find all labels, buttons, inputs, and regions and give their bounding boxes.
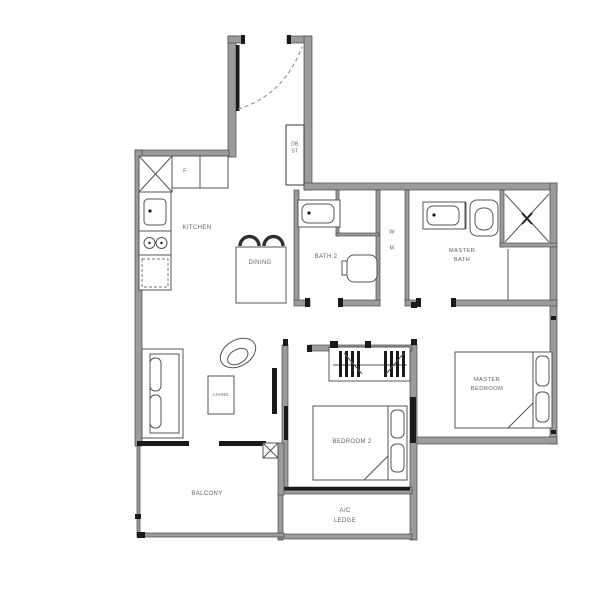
master-bed xyxy=(455,352,552,428)
kitchen-cabinet xyxy=(142,259,168,287)
ac-ledge-label: A/C xyxy=(339,508,350,514)
floor-trap-icon xyxy=(263,443,278,458)
bath2-fixtures xyxy=(298,200,377,282)
dining-set xyxy=(236,237,286,304)
kitchen-sink-icon xyxy=(144,199,166,225)
entry-door-leaf xyxy=(236,45,240,111)
bedroom2-wall-marker xyxy=(284,406,288,440)
ac-ledge-label: LEDGE xyxy=(334,518,356,524)
pillow-icon xyxy=(391,444,404,472)
entry-door-arc xyxy=(238,47,302,109)
master-bedroom-label: BEDROOM xyxy=(471,387,503,393)
bedroom2-label: BEDROOM 2 xyxy=(332,439,371,445)
master-bath-label: MASTER xyxy=(449,249,475,255)
dining-label: DINING xyxy=(248,260,271,266)
kitchen-label: KITCHEN xyxy=(183,225,212,231)
bath2-sink-icon xyxy=(302,204,334,223)
master-bath-label: BATH xyxy=(454,258,470,264)
balcony-label: BALCONY xyxy=(191,491,222,497)
dining-chair xyxy=(264,237,283,247)
dining-chair xyxy=(240,237,259,247)
master-wall-marker xyxy=(410,397,416,443)
pillow-icon xyxy=(536,392,549,422)
bath2-toilet-icon xyxy=(347,255,377,282)
kitchen-fixtures xyxy=(139,156,228,290)
tv-console xyxy=(272,368,277,414)
floor-plan: KITCHEN DINING BATH 2 MASTER BATH W M DB… xyxy=(0,0,600,600)
pillow-icon xyxy=(391,410,404,438)
bedroom2-furniture xyxy=(313,341,410,480)
living-furniture xyxy=(142,332,277,438)
db-store-closet xyxy=(286,125,304,185)
washer-label: M xyxy=(390,246,395,252)
wardrobe-icon xyxy=(329,341,410,381)
bath2-label: BATH 2 xyxy=(315,254,338,260)
db-store-label: ST xyxy=(292,150,299,155)
entry-door xyxy=(236,45,302,111)
master-bedroom-label: MASTER xyxy=(474,378,500,384)
floor-plan-drawing xyxy=(0,0,600,600)
sofa-icon xyxy=(142,349,183,438)
fridge-label: F xyxy=(183,169,187,175)
armchair-icon xyxy=(215,332,261,374)
db-store-label: DB xyxy=(291,143,298,148)
master-bath-fixtures xyxy=(423,194,549,242)
master-bath-sink-icon xyxy=(427,206,459,225)
washer-label: W xyxy=(389,230,395,236)
living-label: LIVING xyxy=(213,393,229,398)
dining-table xyxy=(236,247,286,303)
master-shower-icon xyxy=(505,194,549,242)
pillow-icon xyxy=(536,356,549,386)
